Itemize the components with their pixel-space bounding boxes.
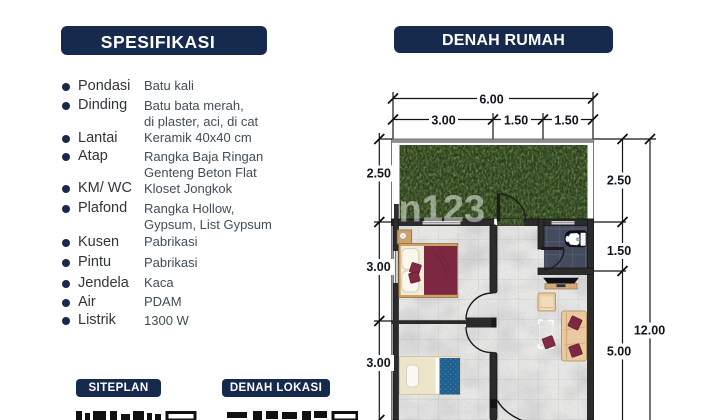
svg-text:6.00: 6.00 [479, 93, 503, 107]
svg-text:3.00: 3.00 [366, 356, 390, 370]
svg-text:12.00: 12.00 [634, 324, 665, 338]
svg-text:2.50: 2.50 [607, 174, 631, 188]
svg-text:3.00: 3.00 [431, 114, 455, 128]
svg-text:5.00: 5.00 [607, 345, 631, 359]
svg-text:1.50: 1.50 [607, 244, 631, 258]
svg-text:1.50: 1.50 [554, 114, 578, 128]
svg-text:2.50: 2.50 [367, 167, 391, 181]
svg-text:n123: n123 [399, 189, 486, 231]
svg-text:3.00: 3.00 [366, 260, 390, 274]
svg-text:1.50: 1.50 [504, 114, 528, 128]
